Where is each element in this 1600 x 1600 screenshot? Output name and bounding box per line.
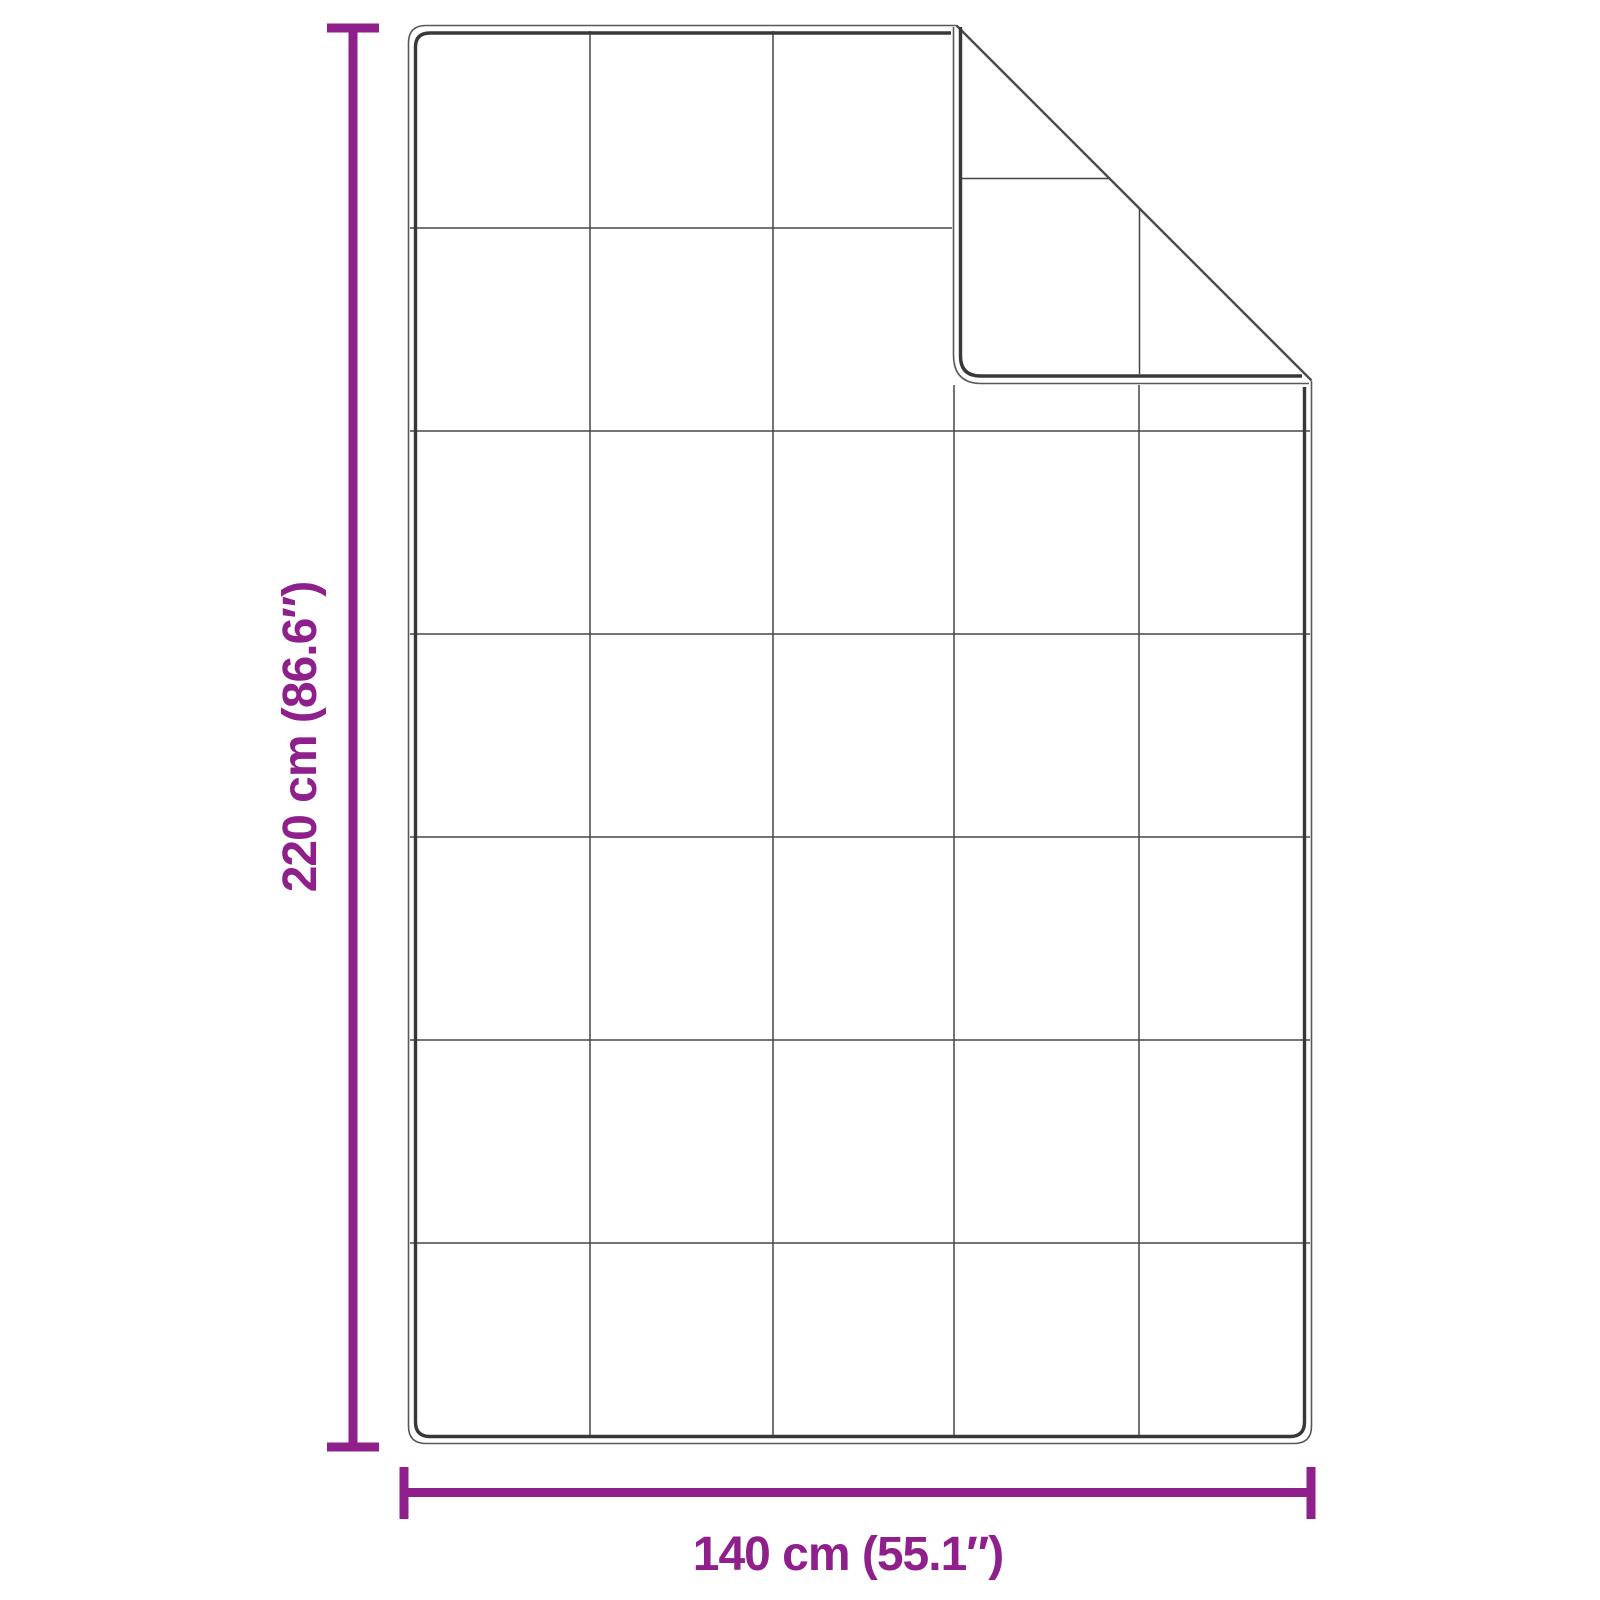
- height-dimension-shaft: [349, 28, 358, 1447]
- height-dimension-line: [327, 24, 379, 1452]
- blanket-body: [409, 26, 1312, 1444]
- blanket-illustration: [0, 0, 1600, 1600]
- height-dimension-bottom-cap: [327, 1443, 379, 1452]
- product-dimension-diagram: 220 cm (86.6″) 140 cm (55.1″): [0, 0, 1600, 1600]
- width-dimension-label: 140 cm (55.1″): [693, 1531, 1004, 1579]
- height-dimension-label: 220 cm (86.6″): [277, 582, 325, 893]
- width-dimension-shaft: [404, 1488, 1311, 1497]
- width-dimension-right-cap: [1307, 1467, 1316, 1519]
- width-dimension-line: [400, 1467, 1316, 1519]
